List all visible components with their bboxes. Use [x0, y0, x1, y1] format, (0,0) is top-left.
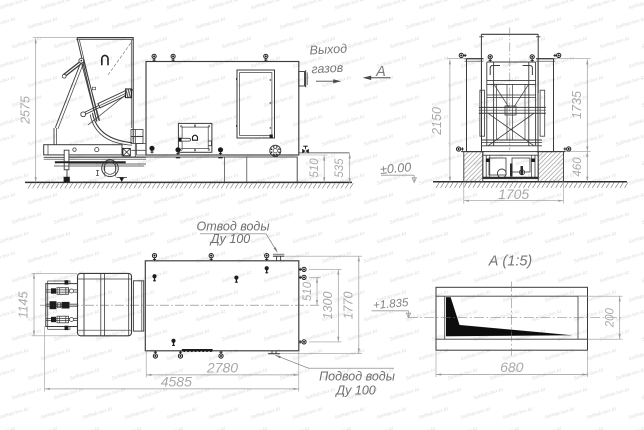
svg-text:А: А — [375, 64, 386, 80]
svg-text:510: 510 — [309, 158, 321, 178]
svg-text:4585: 4585 — [161, 374, 192, 390]
svg-text:газов: газов — [311, 61, 344, 77]
svg-text:460: 460 — [572, 157, 584, 177]
svg-text:Подвод воды: Подвод воды — [319, 370, 395, 384]
svg-text:1770: 1770 — [341, 292, 355, 320]
svg-text:Ду 100: Ду 100 — [334, 384, 376, 398]
svg-text:680: 680 — [500, 359, 524, 375]
svg-text:1300: 1300 — [321, 292, 335, 320]
svg-text:А (1:5): А (1:5) — [488, 254, 533, 270]
svg-text:±0.00: ±0.00 — [379, 160, 411, 177]
svg-text:2780: 2780 — [206, 360, 238, 376]
svg-text:510: 510 — [302, 281, 314, 301]
svg-text:200: 200 — [604, 308, 616, 329]
svg-text:2150: 2150 — [430, 107, 444, 136]
svg-text:1705: 1705 — [498, 186, 529, 202]
svg-text:535: 535 — [334, 158, 346, 178]
svg-text:1145: 1145 — [17, 292, 31, 319]
svg-text:1735: 1735 — [570, 91, 584, 119]
svg-text:2575: 2575 — [19, 96, 33, 125]
svg-text:Выход: Выход — [309, 42, 347, 58]
